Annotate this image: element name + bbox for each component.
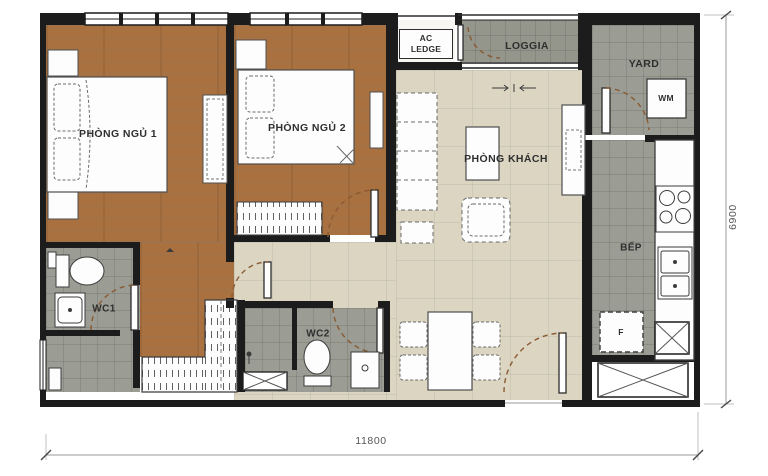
side-table	[401, 222, 433, 243]
living-furniture	[397, 84, 585, 390]
dining-chair	[400, 355, 427, 380]
shelf	[370, 92, 383, 148]
sofa	[397, 93, 437, 210]
ac-ledge-label-line1: AC	[420, 33, 433, 44]
wc2-door-arc	[333, 308, 380, 353]
armchair	[462, 198, 510, 242]
nightstand	[48, 50, 78, 76]
dining-table	[428, 312, 472, 390]
room-label-yard: YARD	[629, 58, 659, 70]
toilet-bowl	[70, 257, 104, 285]
closet-outlines	[142, 300, 237, 392]
shower-fixture	[49, 368, 61, 390]
room-label-wc1: WC1	[92, 304, 115, 315]
nightstand	[236, 40, 266, 69]
dimension-height: 6900	[727, 204, 739, 230]
room-label-bedroom2: PHÒNG NGỦ 2	[268, 122, 346, 134]
room-label-loggia: LOGGIA	[505, 40, 549, 52]
bedroom2-door-leaf	[371, 190, 378, 237]
washing-machine-label: WM	[658, 93, 674, 103]
bedroom2-door-arc	[328, 190, 375, 237]
dining-chair	[400, 322, 427, 347]
yard-door-leaf	[602, 88, 610, 133]
entrance-door-arc	[504, 333, 563, 392]
wc1-fixtures	[48, 248, 174, 390]
tv-cabinet	[562, 105, 585, 195]
fridge-label: F	[618, 327, 623, 337]
room-label-living: PHÒNG KHÁCH	[464, 153, 548, 165]
toilet-tank	[304, 376, 331, 386]
toilet-tank	[56, 255, 69, 287]
bed2	[238, 70, 354, 164]
wc2-door-leaf	[377, 308, 383, 353]
bedroom2-furniture	[236, 40, 383, 235]
bedroom1-door-arc	[232, 262, 268, 298]
wash-basin	[351, 352, 379, 388]
ac-ledge-label-box: AC LEDGE	[399, 29, 453, 59]
shelf	[48, 252, 56, 268]
shower-head	[247, 352, 252, 357]
entrance-door-leaf	[559, 333, 566, 393]
ac-ledge-door-arc	[468, 27, 500, 58]
floor-plan: PHÒNG NGỦ 1 PHÒNG NGỦ 2 PHÒNG KHÁCH LOGG…	[0, 0, 768, 476]
kitchen-fixtures	[598, 79, 694, 397]
vent-mark	[166, 248, 174, 252]
sliding-door-arrows	[492, 84, 536, 92]
room-label-bedroom1: PHÒNG NGỦ 1	[79, 128, 157, 140]
dining-chair	[473, 355, 500, 380]
dimension-width: 11800	[355, 435, 386, 447]
wardrobe-outline	[237, 202, 322, 235]
yard-door-arc	[606, 88, 649, 130]
ac-ledge-label-line2: LEDGE	[411, 44, 441, 55]
bedroom1-door-leaf	[264, 262, 271, 298]
dining-chair	[473, 322, 500, 347]
toilet-bowl	[304, 340, 330, 374]
nightstand	[48, 192, 78, 219]
room-label-kitchen: BẾP	[620, 243, 642, 254]
room-label-wc2: WC2	[306, 329, 329, 340]
plan-linework	[0, 0, 768, 476]
wc1-door-leaf	[131, 285, 138, 330]
ac-ledge-door-leaf	[458, 25, 463, 60]
